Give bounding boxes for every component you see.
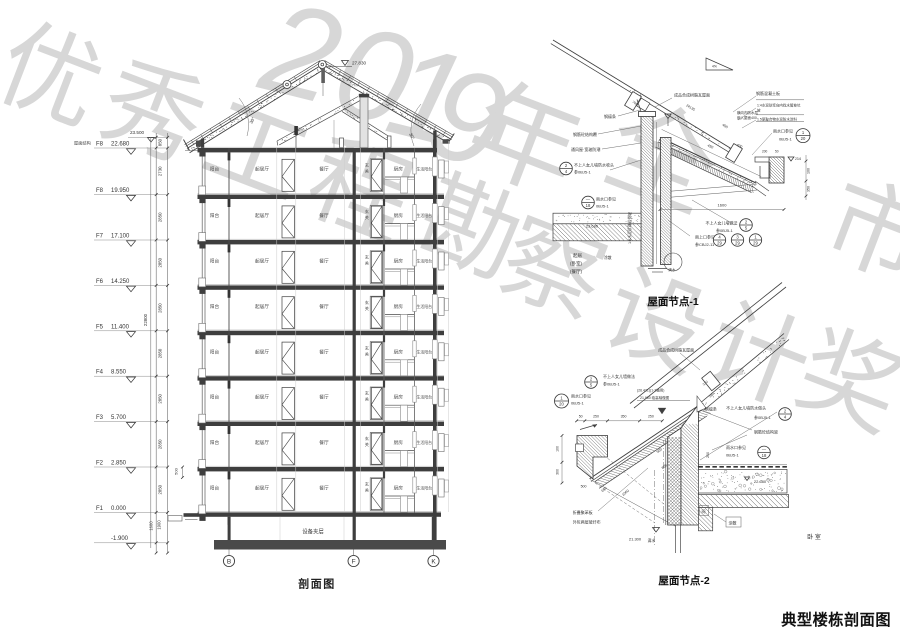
svg-text:200: 200 (762, 150, 768, 154)
svg-text:-1.900: -1.900 (111, 536, 129, 542)
svg-text:350: 350 (621, 415, 627, 419)
svg-text:F7: F7 (96, 234, 104, 240)
svg-text:生活阳台: 生活阳台 (417, 304, 433, 309)
svg-text:22.680: 22.680 (754, 479, 767, 484)
svg-text:起居厅: 起居厅 (255, 213, 269, 219)
svg-text:2850: 2850 (157, 257, 162, 267)
svg-text:100: 100 (807, 168, 811, 174)
svg-text:F4: F4 (96, 370, 104, 376)
svg-text:14.250: 14.250 (111, 279, 130, 285)
svg-text:0BJ5-1: 0BJ5-1 (779, 137, 792, 142)
svg-text:5.700: 5.700 (111, 415, 127, 421)
svg-text:22800: 22800 (143, 313, 148, 326)
svg-text:23.680: 23.680 (586, 224, 599, 229)
svg-text:关: 关 (365, 260, 369, 267)
svg-text:21.300: 21.300 (629, 537, 642, 542)
svg-text:雨水口参见: 雨水口参见 (596, 196, 616, 202)
svg-text:500: 500 (174, 467, 179, 474)
svg-text:F5: F5 (96, 324, 104, 330)
svg-text:关: 关 (365, 214, 369, 221)
svg-text:雨水口参见: 雨水口参见 (571, 393, 591, 399)
svg-text:起居厅: 起居厅 (255, 440, 269, 446)
svg-text:生活阳台: 生活阳台 (417, 349, 433, 354)
svg-text:0BJ5-1: 0BJ5-1 (726, 453, 739, 458)
svg-text:钢檩条: 钢檩条 (604, 113, 616, 119)
svg-text:生活阳台: 生活阳台 (417, 167, 433, 172)
svg-text:餐厅: 餐厅 (319, 303, 329, 310)
svg-text:2850: 2850 (157, 439, 162, 449)
svg-text:参0BJ5-1: 参0BJ5-1 (574, 169, 591, 175)
svg-text:雨水口参见: 雨水口参见 (726, 444, 746, 450)
svg-text:1:4水泥砂浆向内找水管坡坑: 1:4水泥砂浆向内找水管坡坑 (757, 103, 801, 108)
svg-text:厨房: 厨房 (394, 394, 404, 401)
svg-text:嵌入屋面400: 嵌入屋面400 (737, 115, 757, 120)
svg-text:29: 29 (753, 241, 758, 246)
svg-text:餐厅: 餐厅 (319, 394, 329, 401)
svg-text:玄: 玄 (365, 162, 369, 169)
svg-text:2850: 2850 (157, 348, 162, 358)
svg-text:成品合成树脂瓦屋面: 成品合成树脂瓦屋面 (658, 347, 694, 353)
svg-text:参CBJ2-11: 参CBJ2-11 (695, 241, 715, 247)
svg-text:剖面图: 剖面图 (298, 577, 336, 591)
svg-text:玄: 玄 (365, 254, 369, 261)
svg-text:850: 850 (157, 138, 162, 146)
svg-text:钢筋砼结构覆: 钢筋砼结构覆 (573, 131, 597, 137)
svg-text:29: 29 (735, 241, 740, 246)
svg-text:玄: 玄 (365, 481, 369, 488)
svg-text:F8: F8 (96, 142, 104, 148)
svg-text:屋面节点-2: 屋面节点-2 (658, 574, 709, 587)
svg-text:玄: 玄 (365, 208, 369, 215)
svg-text:厨房: 厨房 (394, 485, 404, 492)
svg-text:玄: 玄 (365, 435, 369, 442)
svg-text:F2: F2 (96, 461, 104, 467)
svg-text:餐厅: 餐厅 (319, 439, 329, 446)
svg-text:餐厅: 餐厅 (319, 166, 329, 173)
svg-text:横向内防水层: 横向内防水层 (737, 110, 758, 115)
svg-text:F6: F6 (96, 279, 104, 285)
svg-text:K: K (431, 558, 436, 565)
svg-text:关: 关 (365, 487, 369, 494)
svg-text:餐厅: 餐厅 (319, 258, 329, 265)
svg-text:27.830: 27.830 (352, 61, 366, 66)
svg-text:19.950: 19.950 (111, 188, 130, 194)
svg-text:250: 250 (593, 415, 599, 419)
svg-text:1600: 1600 (149, 521, 154, 531)
svg-text:生活阳台: 生活阳台 (417, 259, 433, 264)
svg-text:8.550: 8.550 (111, 370, 127, 376)
svg-text:250: 250 (706, 452, 710, 458)
svg-text:典型楼栋剖面图: 典型楼栋剖面图 (781, 611, 891, 629)
svg-text:4%: 4% (712, 65, 717, 69)
svg-text:不上人女儿墙防水做头: 不上人女儿墙防水做头 (726, 405, 766, 411)
svg-text:0BJ5-1: 0BJ5-1 (596, 204, 609, 209)
svg-text:50: 50 (775, 150, 779, 154)
svg-text:阳台: 阳台 (210, 348, 220, 355)
svg-text:卧 室: 卧 室 (807, 533, 821, 541)
svg-text:(26.421)(1-3轴用): (26.421)(1-3轴用) (637, 388, 664, 393)
svg-text:起居厅: 起居厅 (255, 395, 269, 401)
svg-text:市: 市 (810, 162, 900, 302)
svg-text:2850: 2850 (157, 303, 162, 313)
svg-text:18: 18 (586, 203, 591, 208)
svg-text:厨房: 厨房 (394, 212, 404, 219)
svg-text:阳台: 阳台 (210, 166, 220, 173)
svg-text:滴水: 滴水 (648, 538, 656, 543)
svg-text:0BJ5-1: 0BJ5-1 (571, 401, 584, 406)
svg-text:起居厅: 起居厅 (255, 259, 269, 265)
svg-text:2730: 2730 (157, 166, 162, 176)
svg-text:阳台: 阳台 (210, 212, 220, 219)
svg-text:B: B (227, 558, 231, 565)
svg-text:650: 650 (601, 486, 608, 493)
svg-text:滴水: 滴水 (668, 267, 676, 272)
svg-text:玄: 玄 (365, 390, 369, 397)
svg-text:1.5厚聚合物水泥防水涂料: 1.5厚聚合物水泥防水涂料 (757, 117, 797, 122)
svg-text:餐厅: 餐厅 (319, 348, 329, 355)
svg-text:生活阳台: 生活阳台 (417, 486, 433, 491)
svg-text:1600: 1600 (718, 203, 728, 208)
svg-text:外包两层玻纤布: 外包两层玻纤布 (573, 519, 601, 525)
svg-text:阳台: 阳台 (210, 485, 220, 492)
svg-text:11.400: 11.400 (111, 324, 130, 330)
svg-text:不上人女儿墙做法: 不上人女儿墙做法 (603, 373, 635, 379)
svg-text:F1: F1 (96, 506, 104, 512)
svg-text:关: 关 (365, 350, 369, 357)
svg-text:钢檩条: 钢檩条 (705, 406, 717, 412)
svg-text:起居厅: 起居厅 (255, 486, 269, 492)
svg-text:折叠聚苯板: 折叠聚苯板 (573, 509, 593, 515)
svg-text:厨房: 厨房 (394, 258, 404, 265)
svg-text:涂敷: 涂敷 (729, 520, 737, 526)
svg-text:2850: 2850 (157, 212, 162, 222)
svg-text:22.680: 22.680 (111, 142, 130, 148)
svg-text:钢筋混凝土板: 钢筋混凝土板 (756, 90, 780, 96)
svg-text:(卧室): (卧室) (570, 260, 582, 267)
svg-text:参0BJ5-1: 参0BJ5-1 (754, 414, 771, 420)
svg-text:关: 关 (365, 396, 369, 403)
svg-text:不上人女儿墙防水收头: 不上人女儿墙防水收头 (574, 162, 614, 168)
svg-text:玄: 玄 (365, 299, 369, 306)
svg-text:阳台: 阳台 (210, 303, 220, 310)
svg-text:餐厅: 餐厅 (319, 212, 329, 219)
svg-text:2850: 2850 (157, 394, 162, 404)
svg-text:0.000: 0.000 (111, 506, 127, 512)
svg-text:阳台: 阳台 (210, 439, 220, 446)
svg-text:23.6: 23.6 (795, 157, 801, 161)
svg-text:厨房: 厨房 (394, 348, 404, 355)
svg-text:屋面节点-1: 屋面节点-1 (647, 295, 698, 308)
svg-text:生活阳台: 生活阳台 (417, 213, 433, 218)
svg-text:餐厅: 餐厅 (319, 485, 329, 492)
svg-text:设备夹层: 设备夹层 (302, 528, 324, 536)
svg-text:雨水口参见: 雨水口参见 (773, 128, 793, 134)
svg-text:1:8水泥珍珠岩找坡: 1:8水泥珍珠岩找坡 (627, 212, 632, 244)
svg-text:参0BJ5-1: 参0BJ5-1 (716, 227, 733, 233)
svg-text:涂散: 涂散 (604, 255, 612, 260)
svg-text:生活阳台: 生活阳台 (417, 440, 433, 445)
svg-text:350: 350 (807, 186, 811, 192)
svg-text:成品合成树脂瓦屋面: 成品合成树脂瓦屋面 (674, 92, 710, 98)
svg-text:屋面结构: 屋面结构 (74, 139, 91, 146)
svg-text:500: 500 (656, 447, 663, 454)
svg-text:1900: 1900 (157, 520, 162, 530)
svg-text:雨上口参见: 雨上口参见 (695, 234, 715, 240)
svg-text:2.850: 2.850 (111, 461, 127, 467)
svg-text:23.500: 23.500 (130, 130, 144, 135)
svg-text:参0BJ5-1: 参0BJ5-1 (603, 381, 620, 387)
svg-text:250: 250 (648, 415, 654, 419)
svg-text:通风屋·宽玻防潮: 通风屋·宽玻防潮 (571, 146, 600, 152)
svg-text:29: 29 (717, 241, 722, 246)
svg-text:闷: 闷 (702, 508, 706, 514)
svg-text:生活阳台: 生活阳台 (417, 395, 433, 400)
svg-text:阳台: 阳台 (210, 258, 220, 265)
svg-text:厨房: 厨房 (394, 166, 404, 173)
svg-text:20: 20 (559, 402, 564, 407)
svg-text:起居厅: 起居厅 (255, 349, 269, 355)
svg-text:阳台: 阳台 (210, 394, 220, 401)
svg-text:21.980 临高轴做图: 21.980 临高轴做图 (640, 395, 670, 400)
svg-text:2850: 2850 (157, 484, 162, 494)
svg-text:不上人女儿墙做法: 不上人女儿墙做法 (706, 220, 738, 226)
svg-text:钢筋砼结构梁: 钢筋砼结构梁 (754, 429, 778, 435)
svg-text:17.100: 17.100 (111, 234, 130, 240)
svg-text:50: 50 (579, 415, 583, 419)
svg-text:关: 关 (365, 441, 369, 448)
svg-text:关: 关 (365, 305, 369, 312)
svg-text:F: F (352, 558, 356, 565)
svg-text:关: 关 (365, 168, 369, 175)
svg-text:20: 20 (801, 136, 806, 141)
svg-text:18: 18 (762, 453, 767, 458)
svg-text:F8: F8 (96, 188, 104, 194)
svg-text:起居厅: 起居厅 (255, 304, 269, 310)
svg-text:300: 300 (556, 469, 560, 475)
svg-text:F3: F3 (96, 415, 104, 421)
svg-text:800: 800 (661, 463, 668, 470)
svg-text:500: 500 (581, 485, 587, 489)
svg-text:玄: 玄 (365, 344, 369, 351)
svg-text:(餐厅): (餐厅) (570, 268, 582, 275)
svg-text:厨房: 厨房 (394, 303, 404, 310)
svg-text:100: 100 (556, 446, 560, 452)
svg-text:厨房: 厨房 (394, 439, 404, 446)
